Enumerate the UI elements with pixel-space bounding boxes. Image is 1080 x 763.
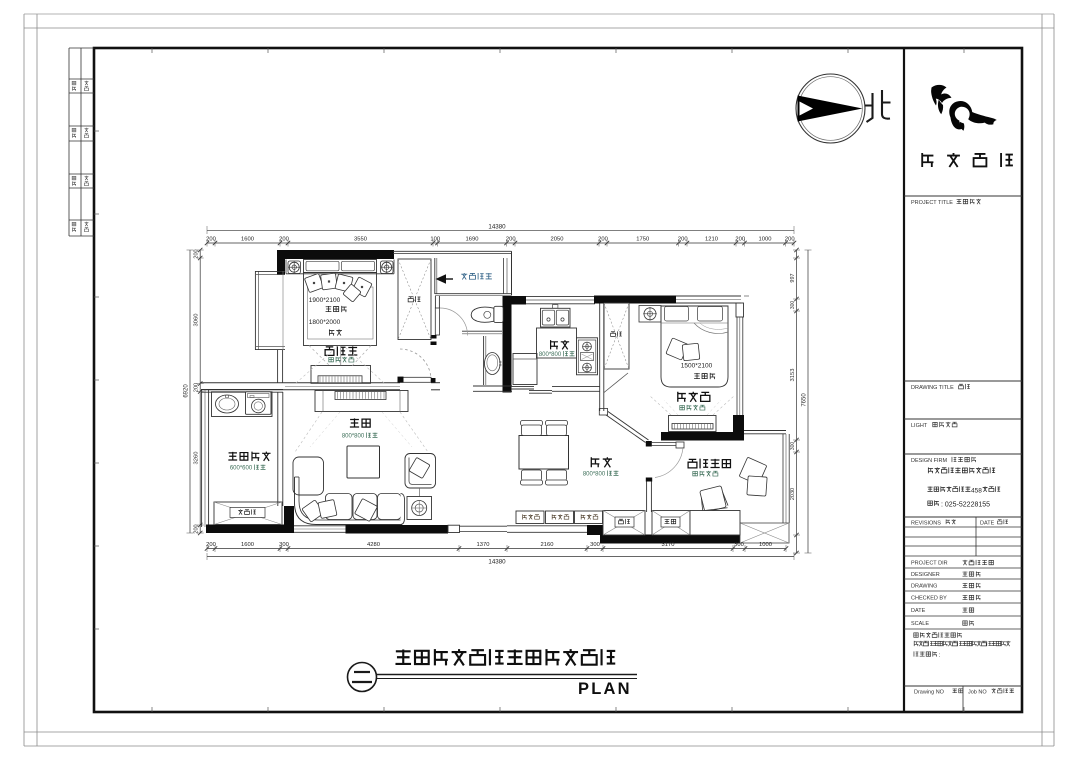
svg-text:1800*2000: 1800*2000 xyxy=(309,319,341,326)
svg-text:2160: 2160 xyxy=(541,542,554,548)
svg-text:1690: 1690 xyxy=(466,237,479,243)
svg-text:2050: 2050 xyxy=(551,237,564,243)
svg-text:200: 200 xyxy=(598,237,608,243)
svg-text:200: 200 xyxy=(785,237,795,243)
svg-text:3550: 3550 xyxy=(354,237,367,243)
svg-text:2030: 2030 xyxy=(790,488,796,500)
svg-text:14380: 14380 xyxy=(488,559,506,566)
svg-text:DATE: DATE xyxy=(911,608,926,614)
svg-text:600*600: 600*600 xyxy=(230,466,253,472)
svg-text:CHECKED BY: CHECKED BY xyxy=(911,596,947,602)
svg-text:3170: 3170 xyxy=(662,542,675,548)
svg-text:1000: 1000 xyxy=(759,542,772,548)
svg-text:SCALE: SCALE xyxy=(911,621,929,627)
svg-text:200: 200 xyxy=(279,237,289,243)
svg-text:PLAN: PLAN xyxy=(578,680,632,698)
svg-text:6920: 6920 xyxy=(184,384,190,398)
svg-text:PROJECT DIR: PROJECT DIR xyxy=(911,561,948,567)
svg-text:100: 100 xyxy=(430,237,440,243)
svg-text:3153: 3153 xyxy=(790,369,796,382)
svg-text:300: 300 xyxy=(279,542,289,548)
svg-text:Job NO: Job NO xyxy=(968,690,987,696)
svg-text:200: 200 xyxy=(206,237,216,243)
svg-text:7650: 7650 xyxy=(802,393,808,407)
svg-text:3060: 3060 xyxy=(194,314,200,327)
svg-text:800*800: 800*800 xyxy=(539,352,562,358)
svg-text:1750: 1750 xyxy=(636,237,649,243)
svg-text:DRAWING TITLE: DRAWING TITLE xyxy=(911,385,954,391)
svg-text:DRAWING: DRAWING xyxy=(911,584,937,590)
svg-text:800*800: 800*800 xyxy=(342,434,365,440)
svg-text:200: 200 xyxy=(206,542,216,548)
svg-text:PROJECT TITLE: PROJECT TITLE xyxy=(911,200,953,206)
svg-text:1600: 1600 xyxy=(241,542,254,548)
svg-text:14380: 14380 xyxy=(488,224,506,231)
svg-text:200: 200 xyxy=(194,383,200,392)
svg-text:DATE: DATE xyxy=(980,521,995,527)
svg-text:1210: 1210 xyxy=(705,237,718,243)
svg-text:1500*2100: 1500*2100 xyxy=(681,363,713,370)
svg-text:300: 300 xyxy=(734,542,744,548)
svg-text:1370: 1370 xyxy=(477,542,490,548)
svg-text:300: 300 xyxy=(790,301,796,310)
svg-text:3260: 3260 xyxy=(194,452,200,465)
svg-text:Drawing NO: Drawing NO xyxy=(914,690,945,696)
svg-text:: 025-52228155: : 025-52228155 xyxy=(941,502,990,509)
svg-text:1000: 1000 xyxy=(759,237,772,243)
svg-text:200: 200 xyxy=(194,524,200,533)
svg-text:DESIGNER: DESIGNER xyxy=(911,572,940,578)
svg-text:800*800: 800*800 xyxy=(583,472,606,478)
svg-text:200: 200 xyxy=(678,237,688,243)
svg-text:300: 300 xyxy=(590,542,600,548)
svg-text:200: 200 xyxy=(194,249,200,258)
svg-text:997: 997 xyxy=(790,273,796,282)
svg-text:LIGHT: LIGHT xyxy=(911,423,928,429)
svg-text:200: 200 xyxy=(506,237,516,243)
svg-text:1600: 1600 xyxy=(241,237,254,243)
svg-text:REVISIONS: REVISIONS xyxy=(911,521,941,527)
svg-text:4280: 4280 xyxy=(367,542,380,548)
svg-text:200: 200 xyxy=(735,237,745,243)
svg-text:1900*2100: 1900*2100 xyxy=(309,297,341,304)
svg-text:458: 458 xyxy=(971,488,982,495)
svg-text:DESIGN FIRM: DESIGN FIRM xyxy=(911,458,947,464)
svg-text:300: 300 xyxy=(790,442,796,451)
